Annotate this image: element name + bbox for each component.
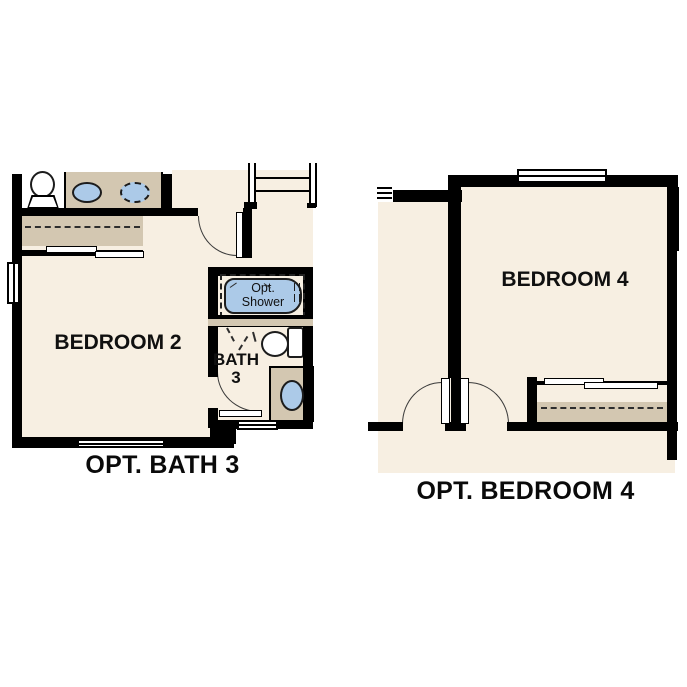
bath3-door-leaf xyxy=(219,410,262,417)
shower-pony-wall xyxy=(208,315,313,327)
window-mullion xyxy=(519,175,605,177)
bedroom2-door-leaf xyxy=(236,212,243,258)
bath-sink-icon xyxy=(280,380,304,411)
stair-rail-right xyxy=(309,163,317,207)
closet-rod-dashed-line xyxy=(541,407,663,409)
door-center-post xyxy=(451,377,460,424)
window-mullion xyxy=(239,424,276,426)
double-door-leaf-right xyxy=(460,378,469,424)
double-door-leaf-left xyxy=(441,378,450,424)
closet-bottom-wall xyxy=(533,422,678,431)
sink-icon xyxy=(72,182,102,203)
shower-label-line2: Shower xyxy=(224,295,302,309)
window-bedroom-bottom xyxy=(77,439,165,448)
stair-rail-left xyxy=(248,163,256,207)
closet-slider-door-a xyxy=(46,246,97,253)
stair-fragment-line-3 xyxy=(377,197,392,199)
shower-label: Opt. Shower xyxy=(224,281,302,309)
plan-left-caption: OPT. BATH 3 xyxy=(10,451,315,480)
toilet-bowl-icon xyxy=(30,171,55,198)
toilet-tank-fill xyxy=(29,197,57,207)
optional-sink-icon xyxy=(120,182,150,203)
window-mullion xyxy=(79,443,163,445)
closet-shelf xyxy=(537,402,667,424)
closet-shelf xyxy=(22,216,143,246)
closet-slider-door-b xyxy=(95,251,144,258)
window-left-wall xyxy=(7,262,20,304)
stair-foot-right xyxy=(307,203,316,208)
bath3-label-line1: BATH xyxy=(206,351,266,370)
wall-interior-vertical xyxy=(448,187,461,378)
stair-fragment-line-1 xyxy=(377,187,392,189)
bath3-label-line2: 3 xyxy=(206,369,266,388)
closet-rod-dashed-line xyxy=(25,226,140,228)
shower-faucet-mark-2 xyxy=(294,294,300,302)
plan-right-caption: OPT. BEDROOM 4 xyxy=(374,477,677,506)
bedroom2-label: BEDROOM 2 xyxy=(28,331,208,354)
wall-bottom-left xyxy=(368,422,403,431)
stair-foot-left xyxy=(244,202,257,209)
bath-toilet-tank-icon xyxy=(287,327,304,358)
shower-faucet-mark-1 xyxy=(294,283,300,291)
closet-slider-door-b xyxy=(584,382,658,389)
stair-line-2 xyxy=(254,190,311,192)
floor-plan-canvas: Opt. Shower BEDROOM 2 BATH 3 OPT. BATH 3 xyxy=(0,0,687,687)
bedroom4-label: BEDROOM 4 xyxy=(470,268,660,291)
toilet-tank-icon xyxy=(27,195,59,209)
window-mullion xyxy=(13,264,15,302)
window-bath-bottom xyxy=(237,420,278,430)
wall-right-upper xyxy=(667,187,679,251)
wall-landing xyxy=(243,208,252,258)
stair-line-1 xyxy=(254,177,311,179)
wall-bath-bottom-right xyxy=(276,420,306,429)
stair-fragment-line-2 xyxy=(377,192,392,194)
lower-floor-apron xyxy=(378,424,675,473)
wall-vanity-stub xyxy=(162,174,172,216)
window-bedroom4-top xyxy=(517,169,607,183)
